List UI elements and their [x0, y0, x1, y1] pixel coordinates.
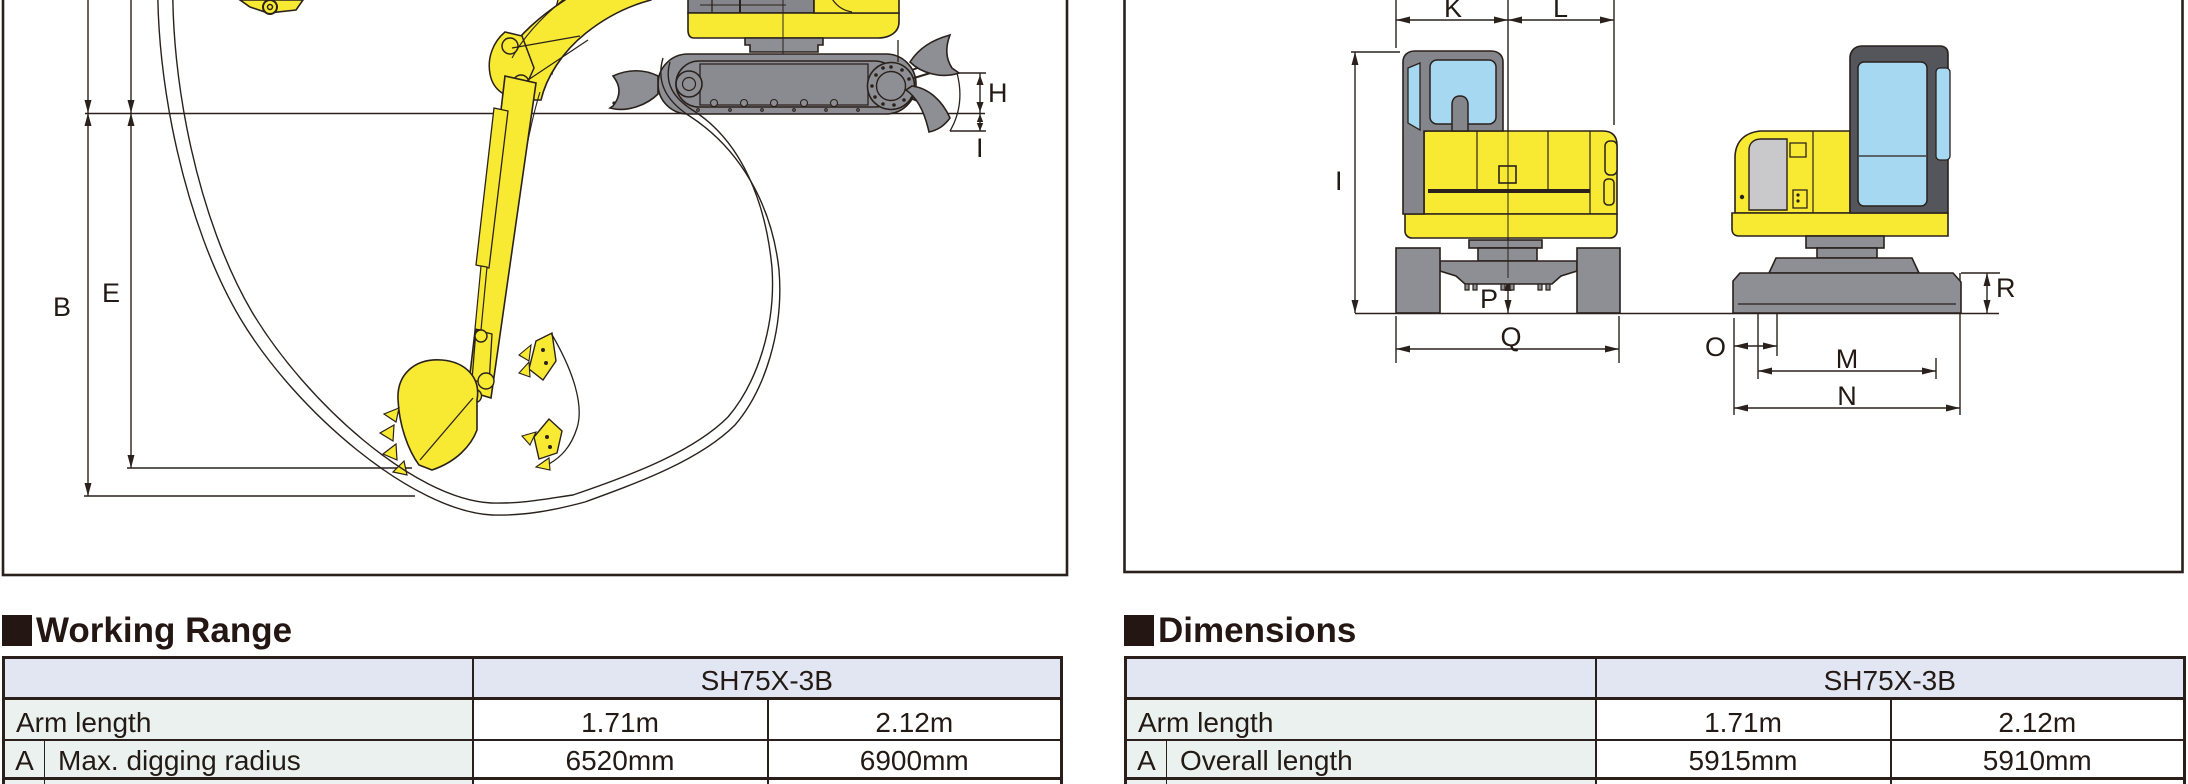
svg-text:R: R [1996, 273, 2016, 303]
svg-text:E: E [102, 278, 120, 308]
svg-text:M: M [1836, 344, 1859, 374]
svg-text:I: I [1335, 166, 1343, 196]
svg-text:O: O [1705, 332, 1726, 362]
svg-text:B: B [53, 292, 71, 322]
svg-text:H: H [988, 78, 1008, 108]
svg-text:I: I [976, 133, 984, 163]
svg-text:K: K [1444, 0, 1462, 23]
svg-text:Q: Q [1500, 322, 1521, 352]
svg-text:L: L [1553, 0, 1568, 23]
svg-text:P: P [1480, 284, 1498, 314]
svg-text:N: N [1837, 381, 1857, 411]
